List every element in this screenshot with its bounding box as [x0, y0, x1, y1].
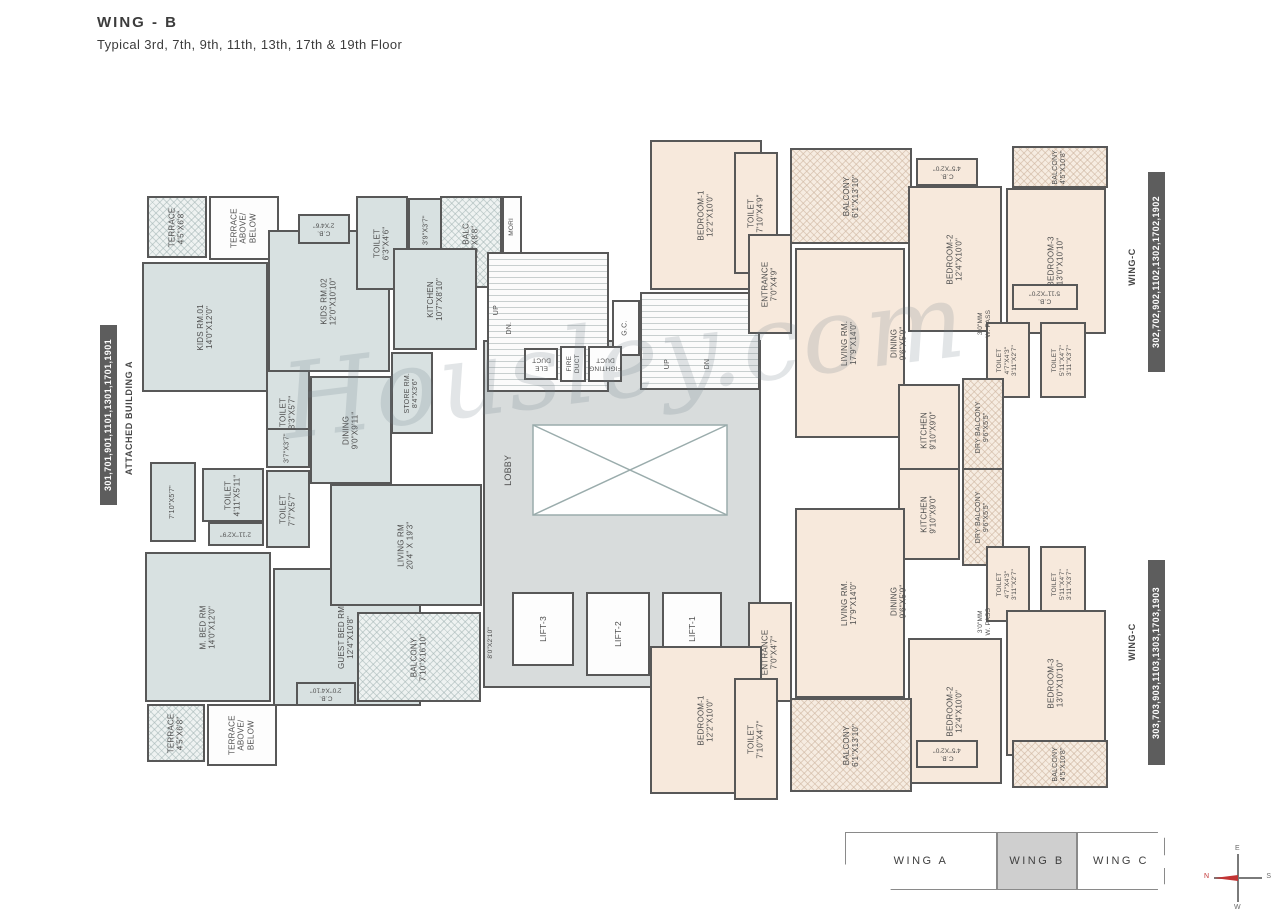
room-ele-duct: ELEDUCT	[524, 348, 558, 380]
unit-numbers-right-bottom-badge: 303,703,903,1103,1303,1703,1903	[1148, 560, 1165, 765]
unit-numbers-right-top-badge: 302,702,902,1102,1302,1702,1902	[1148, 172, 1165, 372]
attached-building-a-label: ATTACHED BUILDING A	[122, 348, 137, 488]
room-toilet-411: TOILET4'11"X5'11"	[202, 468, 264, 522]
room-bedroom3-303: BEDROOM-313'0"X10'10"	[1006, 610, 1106, 756]
room-stair-left-dn: DN.	[502, 312, 518, 344]
wing-c-bottom-label: WING-C	[1124, 600, 1139, 684]
room-kitchen-303: KITCHEN9'10"X9'0"	[898, 468, 960, 560]
title-block: WING - B Typical 3rd, 7th, 9th, 11th, 13…	[97, 14, 402, 52]
room-passage-710: 7'10"X5'7"	[150, 462, 196, 542]
room-balcony-303-side: BALCONY4'5"X10'8"	[1012, 740, 1108, 788]
room-cb-guest: C.B.2'0"X4'10"	[296, 682, 356, 706]
room-dining-303: DINING9'6"X5'9"	[874, 548, 924, 654]
room-stair-right-up: UP	[660, 350, 676, 378]
compass-icon: E N S W	[1208, 848, 1268, 908]
room-wpass-302: 3'0"MMW. PASS	[970, 284, 1000, 364]
room-m-bed-rm: M. BED RM14'0"X12'0"	[145, 552, 271, 702]
floor-plan-canvas: WING - B Typical 3rd, 7th, 9th, 11th, 13…	[0, 0, 1280, 924]
room-cb-kids: C.B.2'X4'6"	[298, 214, 350, 244]
room-terrace-top: TERRACE4'5"X6'8"	[147, 196, 207, 258]
room-balcony-303: BALCONY6'1"X13'10"	[790, 698, 912, 792]
room-cb-303-a: C.B.4'5"X2'0"	[916, 740, 978, 768]
room-terrace-bottom: TERRACE4'5"X6'8"	[147, 704, 205, 762]
key-plan-wing-b[interactable]: WING B	[997, 832, 1077, 890]
room-cb-211: 2'11"X2'9"	[208, 522, 264, 546]
room-kitchen-302: KITCHEN9'10"X9'0"	[898, 384, 960, 476]
room-cb-302-b: C.B.5'11"X2'0"	[1012, 284, 1078, 310]
wing-c-top-label: WING-C	[1124, 225, 1139, 309]
room-dry-balcony-302: DRY BALCONY9'6"X5'5"	[962, 378, 1004, 476]
room-store-rm: STORE RM.8'4"X3'6"	[391, 352, 433, 434]
key-plan: WING A WING B WING C	[845, 832, 1165, 890]
room-balcony-302: BALCONY6'1"X13'10"	[790, 148, 912, 244]
room-kids-rm-01: KIDS RM.0114'0"X12'0"	[142, 262, 268, 392]
room-toilet-77: TOILET7'7"X5'7"	[266, 470, 310, 548]
room-niche-80: 8'0"X2'10"	[478, 606, 504, 680]
room-toilet-302-c: TOILET5'11"X4'7"3'11"X3'7"	[1040, 322, 1086, 398]
room-balcony-left: BALCONY7'10"X16'10"	[357, 612, 481, 702]
room-bedroom3-302: BEDROOM-313'0"X10'10"	[1006, 188, 1106, 334]
room-living-rm-left: LIVING RM20'4" X 19'3"	[330, 484, 482, 606]
room-stair-right-dn: DN	[700, 350, 716, 378]
room-terrace-above-below-bottom: TERRACEABOVE/BELOW	[207, 704, 277, 766]
room-dining-302: DINING9'6"X5'9"	[874, 290, 924, 396]
compass-north-arrow	[1214, 875, 1238, 881]
room-lobby-label: LOBBY	[495, 430, 521, 510]
room-closet-37: 3'7"X3'7"	[266, 428, 310, 468]
lobby-cross-decor	[532, 424, 728, 516]
room-cb-302-a: C.B.4'5"X2'0"	[916, 158, 978, 186]
key-plan-wing-c[interactable]: WING C	[1077, 832, 1165, 890]
room-balcony-302-side: BALCONY4'5"X10'8"	[1012, 146, 1108, 188]
room-lift-2: LIFT-2	[586, 592, 650, 676]
room-lift-3: LIFT-3	[512, 592, 574, 666]
page-subtitle: Typical 3rd, 7th, 9th, 11th, 13th, 17th …	[97, 37, 402, 52]
unit-numbers-left-badge: 301,701,901,1101,1301,1701,1901	[100, 325, 117, 505]
room-mori: MORI	[502, 196, 522, 258]
room-wpass-303: 3'0"MMW. PASS	[970, 582, 1000, 662]
page-title: WING - B	[97, 14, 402, 31]
room-toilet-303-entry: TOILET7'10"X4'7"	[734, 678, 778, 800]
key-plan-wing-a[interactable]: WING A	[845, 832, 997, 890]
room-fire-duct: FIREDUCT	[560, 346, 586, 382]
room-entrance-302: ENTRANCE7'0"X4'9"	[748, 234, 792, 334]
room-fighting-duct: FIGHTINGDUCT	[588, 346, 622, 382]
room-dining-left: DINING9'0"X9'11"	[310, 376, 392, 484]
room-kitchen-left: KITCHEN10'7"X8'10"	[393, 248, 477, 350]
